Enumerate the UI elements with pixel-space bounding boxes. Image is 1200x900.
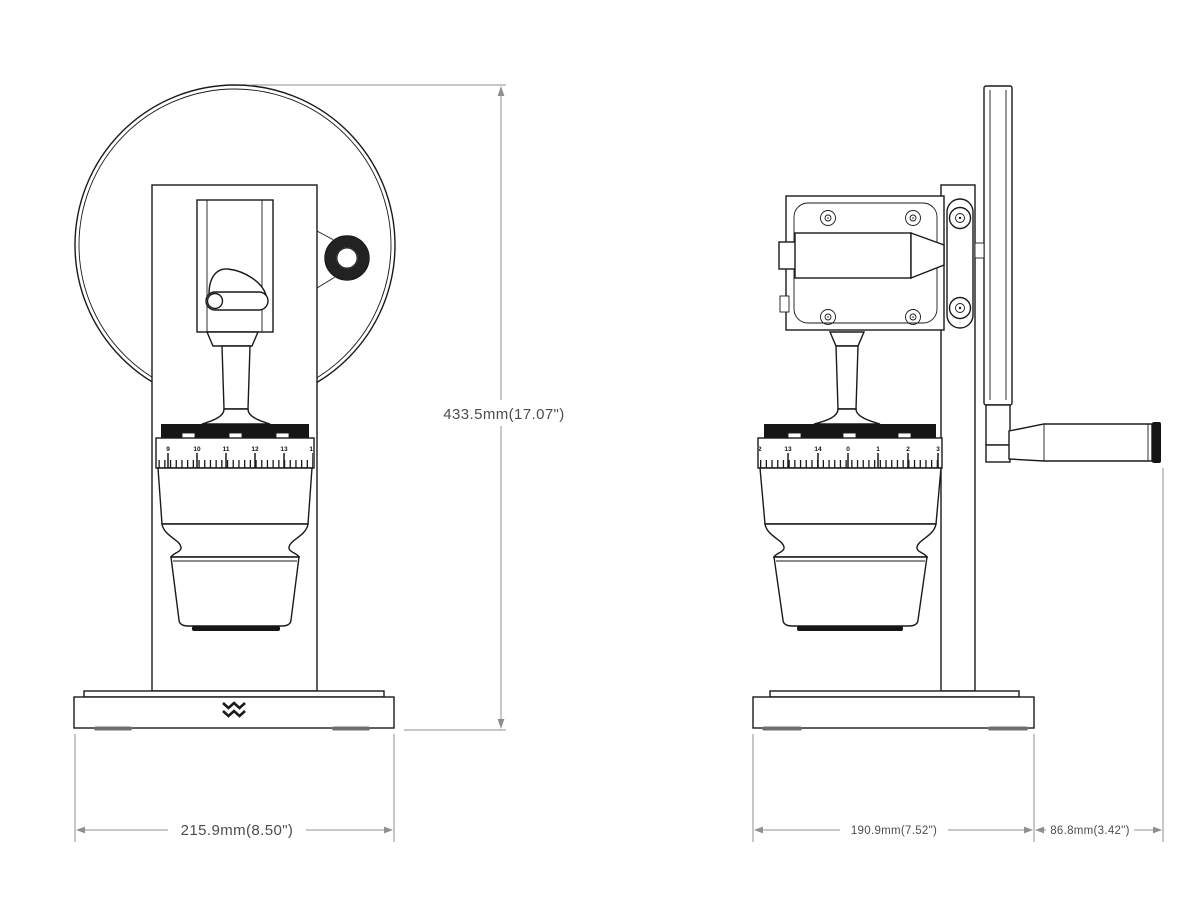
cup-base-ring xyxy=(797,626,903,631)
base-width-dimension: 215.9mm(8.50") xyxy=(75,734,394,842)
flywheel-edge xyxy=(975,86,1012,405)
base-block xyxy=(753,697,1034,728)
base-foot xyxy=(762,727,802,731)
arrow-up-icon xyxy=(498,86,505,96)
base-front xyxy=(74,691,394,731)
handle-end-cap xyxy=(1152,422,1161,463)
drawing-page: 9 10 11 12 13 14 xyxy=(0,0,1200,900)
crank-knob-front xyxy=(317,231,370,288)
base-top-plate xyxy=(84,691,384,697)
base-foot xyxy=(988,727,1028,731)
cup-base-ring xyxy=(192,626,280,631)
grind-chamber-side xyxy=(760,468,941,631)
arrow-right-icon xyxy=(384,827,393,834)
arrow-right-icon xyxy=(1153,827,1162,834)
handle-grip xyxy=(1009,424,1152,461)
svg-text:14: 14 xyxy=(814,446,822,453)
base-foot xyxy=(332,727,370,731)
crank-handle-side xyxy=(986,405,1161,463)
technical-drawing-canvas: 9 10 11 12 13 14 xyxy=(0,0,1200,900)
arrow-left-icon xyxy=(76,827,85,834)
svg-text:2: 2 xyxy=(906,446,910,453)
base-top-plate xyxy=(770,691,1019,697)
gear-housing xyxy=(779,196,944,330)
crank-hub xyxy=(986,405,1010,445)
handle-overhang-dimension-label: 86.8mm(3.42") xyxy=(1050,825,1130,837)
drive-shaft xyxy=(795,233,911,278)
adjustment-dial-front: 9 10 11 12 13 14 xyxy=(156,424,317,468)
handle-overhang-dimension: 86.8mm(3.42") xyxy=(1035,468,1163,842)
svg-text:12: 12 xyxy=(251,446,259,453)
svg-text:0: 0 xyxy=(846,446,850,453)
svg-text:10: 10 xyxy=(193,446,201,453)
svg-text:1: 1 xyxy=(876,446,880,453)
shaft-end-stub xyxy=(779,242,796,269)
mount-bracket xyxy=(947,199,973,328)
side-view: 12 13 14 0 1 2 3 xyxy=(753,86,1163,842)
base-side xyxy=(753,691,1034,731)
base-foot xyxy=(94,727,132,731)
grind-chamber-front xyxy=(158,468,312,631)
svg-text:11: 11 xyxy=(223,446,230,453)
stem-side xyxy=(814,332,880,424)
svg-text:9: 9 xyxy=(166,446,170,453)
base-depth-dimension: 190.9mm(7.52") xyxy=(753,734,1034,842)
arrow-right-icon xyxy=(1024,827,1033,834)
arrow-left-icon xyxy=(754,827,763,834)
front-view: 9 10 11 12 13 14 xyxy=(74,85,569,842)
height-dimension-label: 433.5mm(17.07") xyxy=(443,406,564,423)
crank-arm xyxy=(986,445,1010,462)
base-width-dimension-label: 215.9mm(8.50") xyxy=(181,822,294,839)
svg-text:13: 13 xyxy=(784,446,792,453)
bean-hopper-tube xyxy=(197,200,273,332)
svg-text:13: 13 xyxy=(280,446,288,453)
svg-text:3: 3 xyxy=(936,446,940,453)
arrow-down-icon xyxy=(498,719,505,729)
arrow-left-icon xyxy=(1035,827,1044,834)
base-depth-dimension-label: 190.9mm(7.52") xyxy=(851,825,937,837)
